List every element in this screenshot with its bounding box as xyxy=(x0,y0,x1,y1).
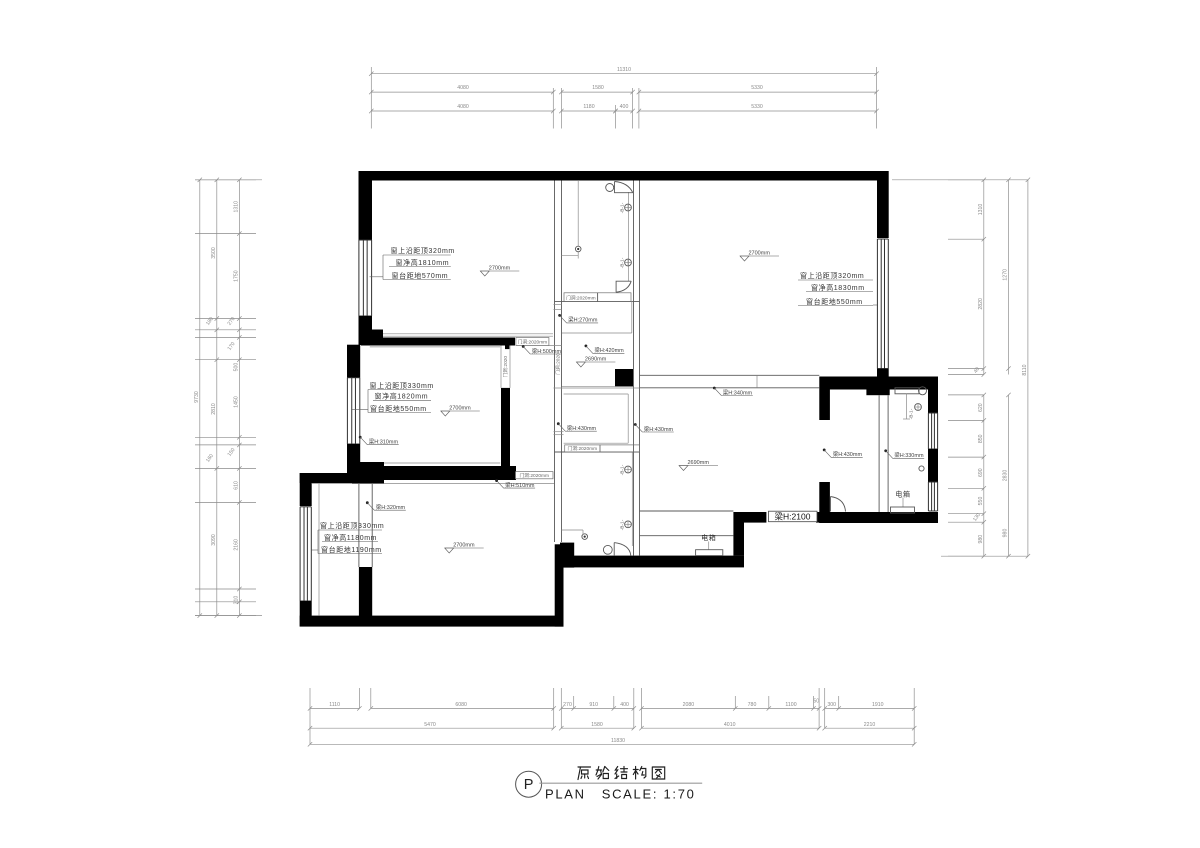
svg-text:4080: 4080 xyxy=(457,104,469,110)
svg-text:梁H:330mm: 梁H:330mm xyxy=(894,451,924,459)
svg-text:2830: 2830 xyxy=(1003,470,1009,482)
svg-text:梁H:420mm: 梁H:420mm xyxy=(594,346,624,354)
svg-text:11310: 11310 xyxy=(617,67,631,73)
svg-text:2820: 2820 xyxy=(978,298,984,310)
svg-text:1750: 1750 xyxy=(233,270,239,282)
svg-text:2700mm: 2700mm xyxy=(489,266,511,272)
svg-text:门洞:2020mm: 门洞:2020mm xyxy=(519,472,549,479)
svg-text:6080: 6080 xyxy=(455,702,467,708)
svg-text:窗净高1820mm: 窗净高1820mm xyxy=(375,392,429,401)
svg-text:5330: 5330 xyxy=(751,104,763,110)
svg-text:2210: 2210 xyxy=(864,722,876,728)
svg-text:1310: 1310 xyxy=(978,204,984,216)
svg-text:1100: 1100 xyxy=(785,702,796,708)
svg-text:窗净高1180mm: 窗净高1180mm xyxy=(324,533,377,542)
svg-text:2690mm: 2690mm xyxy=(585,357,607,363)
svg-text:5470: 5470 xyxy=(424,722,436,728)
svg-text:2160: 2160 xyxy=(233,539,239,551)
svg-text:980: 980 xyxy=(978,535,984,544)
svg-text:310: 310 xyxy=(233,596,239,605)
svg-text:梁H:430mm: 梁H:430mm xyxy=(567,424,597,432)
svg-text:1310: 1310 xyxy=(233,201,239,213)
svg-text:780: 780 xyxy=(748,702,757,708)
svg-text:窗净高1810mm: 窗净高1810mm xyxy=(396,258,450,267)
svg-text:8110: 8110 xyxy=(1022,364,1028,375)
svg-text:1580: 1580 xyxy=(591,722,603,728)
svg-text:2080: 2080 xyxy=(683,702,695,708)
svg-text:P: P xyxy=(524,777,534,793)
svg-text:窗上沿距顶320mm: 窗上沿距顶320mm xyxy=(391,246,455,255)
svg-text:PLAN SCALE: 1:70: PLAN SCALE: 1:70 xyxy=(545,787,696,802)
svg-text:梁H:430mm: 梁H:430mm xyxy=(833,450,863,458)
svg-text:850: 850 xyxy=(978,434,984,443)
svg-text:2700mm: 2700mm xyxy=(749,251,771,257)
svg-text:2700mm: 2700mm xyxy=(453,543,475,549)
svg-text:4080: 4080 xyxy=(457,85,469,91)
svg-text:1580: 1580 xyxy=(592,85,604,91)
svg-text:1450: 1450 xyxy=(233,396,239,408)
svg-text:窗台距地570mm: 窗台距地570mm xyxy=(392,271,449,280)
svg-text:梁H:340mm: 梁H:340mm xyxy=(723,388,753,396)
svg-text:3500: 3500 xyxy=(211,247,217,259)
svg-text:梁H:430mm: 梁H:430mm xyxy=(644,425,674,433)
svg-text:窗台距地1190mm: 窗台距地1190mm xyxy=(321,545,382,554)
svg-text:梁H:270mm: 梁H:270mm xyxy=(568,316,598,324)
svg-text:980: 980 xyxy=(1003,529,1009,538)
svg-text:窗上沿距顶320mm: 窗上沿距顶320mm xyxy=(800,271,864,280)
svg-text:-B-1-: -B-1- xyxy=(909,408,915,419)
svg-text:梁H:500mm: 梁H:500mm xyxy=(532,347,562,355)
svg-text:50: 50 xyxy=(813,699,819,705)
svg-text:门洞:2020: 门洞:2020 xyxy=(502,356,509,378)
svg-text:2700mm: 2700mm xyxy=(449,406,471,412)
svg-text:5330: 5330 xyxy=(751,85,763,91)
svg-text:梁H:510mm: 梁H:510mm xyxy=(505,481,535,489)
svg-text:窗台距地550mm: 窗台距地550mm xyxy=(370,404,427,413)
svg-text:电箱: 电箱 xyxy=(895,489,910,498)
svg-text:窗净高1830mm: 窗净高1830mm xyxy=(811,283,865,292)
svg-text:门洞:2020mm: 门洞:2020mm xyxy=(566,294,596,301)
svg-text:梁H:320mm: 梁H:320mm xyxy=(376,503,406,511)
svg-text:910: 910 xyxy=(589,702,598,708)
svg-text:电箱: 电箱 xyxy=(701,533,716,542)
svg-text:1180: 1180 xyxy=(583,104,594,110)
svg-text:4010: 4010 xyxy=(724,722,736,728)
svg-text:窗上沿距顶330mm: 窗上沿距顶330mm xyxy=(370,381,434,390)
svg-text:550: 550 xyxy=(978,497,984,506)
svg-text:400: 400 xyxy=(620,702,629,708)
svg-text:270: 270 xyxy=(563,702,572,708)
svg-text:梁H:2100: 梁H:2100 xyxy=(775,512,811,522)
svg-text:门洞:2020mm: 门洞:2020mm xyxy=(518,339,548,346)
svg-text:梁H:310mm: 梁H:310mm xyxy=(369,437,399,445)
svg-text:11830: 11830 xyxy=(611,738,625,744)
svg-text:690: 690 xyxy=(978,468,984,477)
svg-text:窗上沿距顶330mm: 窗上沿距顶330mm xyxy=(320,521,384,530)
svg-text:1110: 1110 xyxy=(329,702,340,708)
svg-text:2690mm: 2690mm xyxy=(688,460,710,466)
svg-text:400: 400 xyxy=(620,104,629,110)
svg-text:门洞:2020mm: 门洞:2020mm xyxy=(568,445,598,452)
svg-text:门洞:2020: 门洞:2020 xyxy=(555,353,562,375)
svg-text:610: 610 xyxy=(233,481,239,490)
svg-text:2810: 2810 xyxy=(211,403,217,415)
svg-text:窗台距地550mm: 窗台距地550mm xyxy=(806,297,863,306)
svg-text:620: 620 xyxy=(978,403,984,412)
svg-text:500: 500 xyxy=(233,363,239,372)
svg-text:1270: 1270 xyxy=(1003,269,1009,281)
svg-text:1910: 1910 xyxy=(872,702,884,708)
svg-text:3090: 3090 xyxy=(211,534,217,546)
svg-text:300: 300 xyxy=(827,702,836,708)
svg-text:9730: 9730 xyxy=(194,391,200,403)
